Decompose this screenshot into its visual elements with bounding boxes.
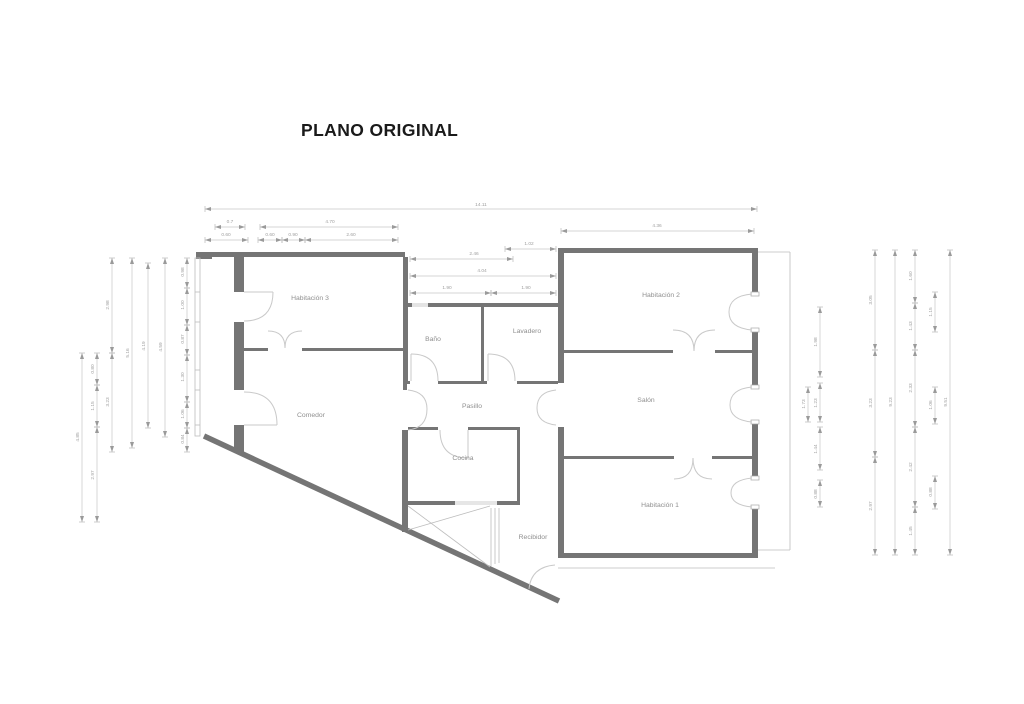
dimension-label: 1.00 — [180, 300, 186, 310]
dimension-label: 1.45 — [908, 526, 914, 536]
dimension-label: 1.02 — [524, 241, 534, 247]
dimension-label: 2.97 — [868, 501, 874, 511]
dimension-label: 1.90 — [521, 285, 531, 291]
room-label: Comedor — [297, 412, 326, 419]
dimension-label: 1.06 — [180, 409, 186, 419]
dimension-label: 1.06 — [928, 400, 934, 410]
dimension-label: 2.98 — [105, 300, 111, 310]
dimension-label: 0.7 — [227, 219, 234, 225]
dimension-label: 1.15 — [928, 307, 934, 317]
room-label: Salón — [637, 397, 655, 404]
dimension-label: 14.11 — [475, 202, 487, 208]
dimension-label: 0.60 — [265, 232, 275, 238]
room-label: Recibidor — [519, 534, 548, 541]
dimension-label: 1.98 — [813, 337, 819, 347]
dimension-label: 1.43 — [908, 321, 914, 331]
dimension-label: 1.60 — [908, 271, 914, 281]
dimension-label: 1.15 — [90, 401, 96, 411]
door-arcs-layer — [244, 292, 752, 589]
dimension-label: 9.23 — [888, 397, 894, 407]
dimension-label: 2.97 — [90, 470, 96, 480]
diagonal-wall — [204, 436, 559, 601]
dimension-label: 4.70 — [325, 219, 335, 225]
room-label: Cocina — [452, 455, 473, 462]
dimension-label: 2.46 — [469, 251, 479, 257]
window-frames — [751, 292, 759, 509]
room-label: Lavadero — [513, 328, 542, 335]
room-label: Pasillo — [462, 403, 482, 410]
dimension-label: 0.90 — [288, 232, 298, 238]
dimension-label: 0.80 — [90, 364, 96, 374]
dimension-label: 4.85 — [75, 432, 81, 442]
room-label: Habitación 3 — [291, 295, 329, 302]
dimension-label: 0.98 — [180, 267, 186, 277]
dimension-label: 0.88 — [928, 487, 934, 497]
thin-lines-layer — [195, 252, 790, 568]
dimension-label: 2.60 — [346, 232, 356, 238]
dimension-label: 0.60 — [221, 232, 231, 238]
dimension-label: 2.42 — [908, 462, 914, 472]
dimension-label: 1.73 — [801, 399, 807, 409]
dimension-label: 3.05 — [868, 295, 874, 305]
dimension-label: 2.33 — [908, 383, 914, 393]
dimension-label: 3.23 — [868, 398, 874, 408]
dimension-label: 9.51 — [943, 397, 949, 407]
dimension-label: 4.19 — [141, 341, 147, 351]
dimension-label: 4.36 — [652, 223, 662, 229]
dimension-label: 1.23 — [813, 398, 819, 408]
dimension-label: 5.16 — [125, 348, 131, 358]
dimension-label: 3.23 — [105, 397, 111, 407]
dimension-label: 4.04 — [477, 268, 487, 274]
dimension-label: 4.59 — [158, 342, 164, 352]
dimension-label: 1.44 — [813, 444, 819, 454]
dimension-label: 0.84 — [180, 434, 186, 444]
room-label: Baño — [425, 336, 441, 343]
dimension-label: 1.30 — [180, 372, 186, 382]
dimension-label: 1.90 — [442, 285, 452, 291]
dimension-label: 0.87 — [180, 334, 186, 344]
room-label: Habitación 2 — [642, 292, 680, 299]
dimension-label: 0.88 — [813, 489, 819, 499]
page: { "title": "PLANO ORIGINAL", "plan_name"… — [0, 0, 1024, 704]
floor-plan-canvas: Habitación 3BañoLavaderoHabitación 2Come… — [0, 0, 1024, 704]
room-label: Habitación 1 — [641, 502, 679, 509]
